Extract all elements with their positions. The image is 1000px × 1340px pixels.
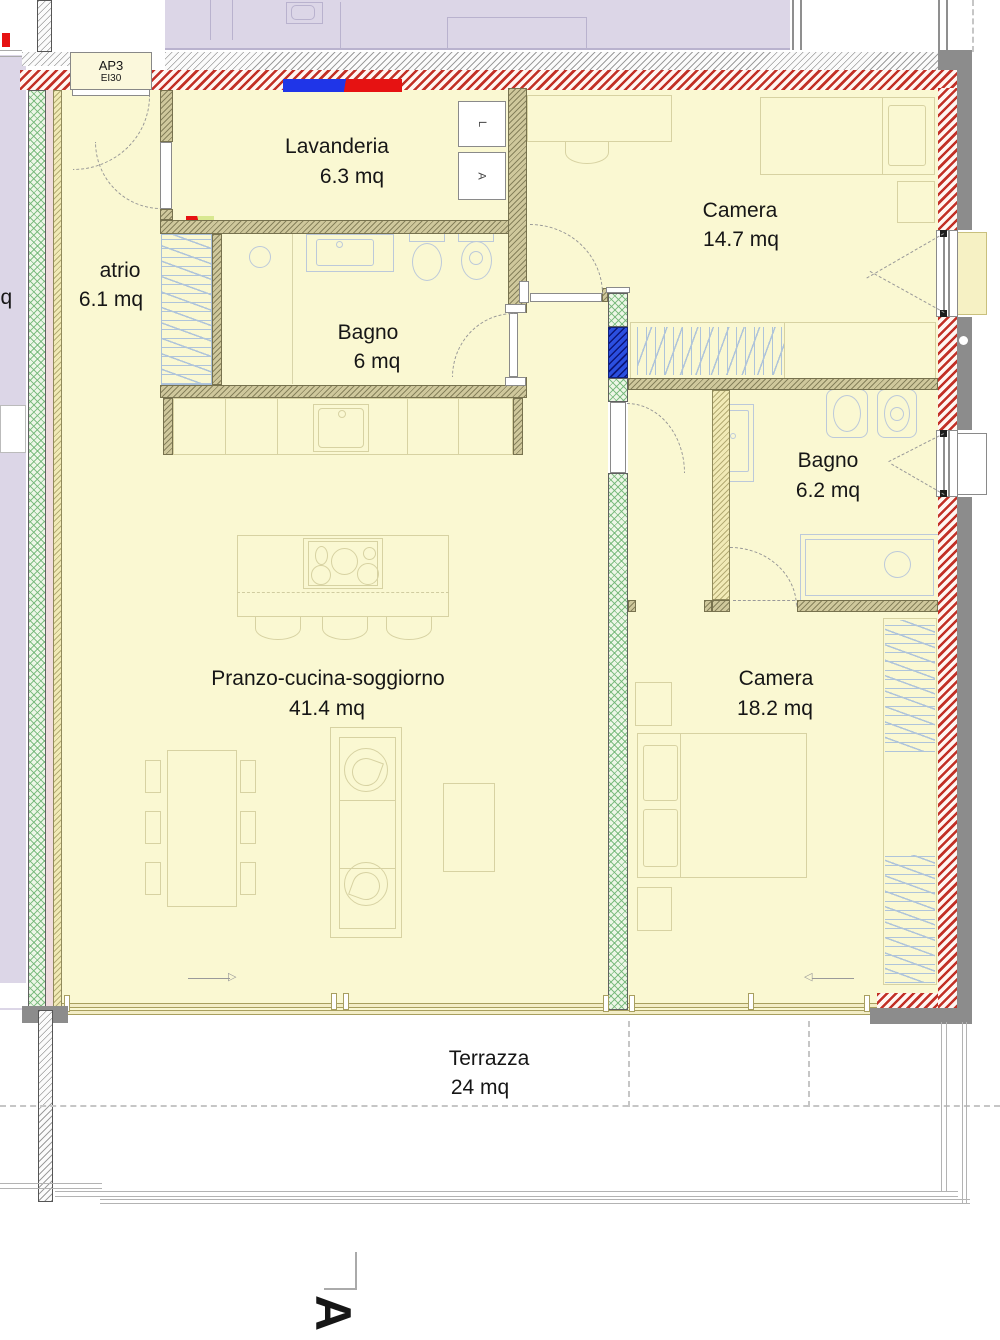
door-jamb xyxy=(704,600,712,612)
wall-green xyxy=(608,293,628,327)
slide-arrow-left-icon: ◁ xyxy=(804,972,812,983)
window-bath2 xyxy=(936,430,958,497)
chair xyxy=(240,862,256,895)
window-glass xyxy=(943,231,945,316)
dryer-letter: A xyxy=(476,172,488,179)
pillow xyxy=(888,105,926,166)
stool xyxy=(255,617,301,640)
bed-line xyxy=(680,734,681,877)
chair xyxy=(145,760,161,793)
sliding-glazing xyxy=(62,1010,935,1015)
shower-head xyxy=(249,246,271,268)
entrance-code: AP3 xyxy=(99,58,124,73)
room-label-terrazza: Terrazza xyxy=(449,1047,530,1071)
chair xyxy=(145,811,161,844)
door-leaf-hall xyxy=(610,402,626,473)
terrace-dashed-line xyxy=(0,1105,1000,1107)
room-area-living: 41.4 mq xyxy=(289,697,365,721)
neighbor-sink-basin xyxy=(291,5,315,20)
burner xyxy=(357,563,379,585)
chair xyxy=(145,862,161,895)
shower2-drain xyxy=(884,551,911,578)
wall-insulation-left xyxy=(28,90,46,1010)
wall-layer-inner xyxy=(53,90,62,1010)
room-area-bagno2: 6.2 mq xyxy=(796,479,860,503)
wall xyxy=(160,220,527,234)
neighbor-gap xyxy=(0,983,26,1008)
burner xyxy=(311,565,331,585)
counter-div xyxy=(407,398,408,455)
outer-band xyxy=(957,55,972,230)
wall-cap xyxy=(163,398,173,455)
outer-band xyxy=(957,317,972,430)
frame-tick xyxy=(629,995,635,1012)
slide-arrow-right-icon: ▷ xyxy=(228,972,236,983)
counter-div xyxy=(277,398,278,455)
vent-symbol xyxy=(283,79,402,92)
door-jamb xyxy=(505,377,526,386)
corner-gray xyxy=(870,1008,972,1024)
section-line xyxy=(324,1288,357,1290)
window-glass xyxy=(948,231,950,316)
dining-table xyxy=(167,750,237,907)
pillow xyxy=(643,809,678,867)
wall xyxy=(508,88,527,313)
window-glass xyxy=(943,431,945,496)
wardrobe-div xyxy=(784,322,785,379)
desk xyxy=(527,95,672,142)
wall-fire-left xyxy=(20,70,72,90)
bidet2-drain xyxy=(890,407,904,421)
bed-line xyxy=(882,98,883,174)
room-label-bagno1: Bagno xyxy=(338,321,399,345)
door-jamb xyxy=(628,600,636,612)
wall-bath2-left xyxy=(712,390,730,600)
room-area-atrio: 6.1 mq xyxy=(79,288,143,312)
door-leaf-bath2 xyxy=(733,600,795,601)
wall-exterior-right xyxy=(938,497,957,1008)
counter-div xyxy=(458,398,459,455)
pier-top xyxy=(37,0,52,52)
shower2-tray xyxy=(805,539,934,596)
railing xyxy=(941,1022,947,1192)
wall xyxy=(160,90,173,142)
nightstand xyxy=(635,682,672,726)
door-leaf-laundry xyxy=(160,142,172,209)
wall-line xyxy=(792,0,794,50)
room-area-bagno1: 6 mq xyxy=(354,350,401,374)
stool xyxy=(322,617,368,640)
railing xyxy=(962,1022,967,1204)
railing xyxy=(0,1183,102,1189)
desk-chair xyxy=(565,141,609,164)
slide-arrow-line xyxy=(812,978,854,979)
wall-green xyxy=(608,473,628,1010)
burner xyxy=(315,546,328,565)
room-area-camera1: 14.7 mq xyxy=(703,228,779,252)
vanity-basin xyxy=(316,239,374,266)
room-area-terrazza: 24 mq xyxy=(451,1076,509,1100)
wall xyxy=(160,209,173,220)
wall-line xyxy=(800,0,802,50)
wall xyxy=(212,234,222,385)
room-area-camera2: 18.2 mq xyxy=(737,697,813,721)
line xyxy=(0,50,22,51)
burner xyxy=(331,548,358,575)
sofa-div xyxy=(339,800,396,801)
door-jamb xyxy=(505,304,526,313)
wall-line xyxy=(946,0,948,50)
neighbor-apartment-left xyxy=(0,55,26,1010)
section-line xyxy=(355,1252,357,1289)
outer-band xyxy=(957,497,972,1010)
neighbor-window-gap xyxy=(0,405,26,453)
nightstand xyxy=(897,181,935,223)
kitchen-faucet xyxy=(338,410,346,418)
window-sill-white xyxy=(957,433,987,495)
entrance-fire-rating: EI30 xyxy=(101,73,122,84)
terrace-dashed-line xyxy=(808,1021,810,1107)
coffee-table xyxy=(443,783,495,872)
toilet2-bowl xyxy=(833,395,861,432)
counter-div xyxy=(225,398,226,455)
railing xyxy=(55,1191,958,1197)
room-area-lavanderia: 6.3 mq xyxy=(320,165,384,189)
atrio-closet xyxy=(161,234,212,385)
wall-exterior-right xyxy=(938,317,957,430)
toilet-tank xyxy=(409,233,445,242)
frame-tick xyxy=(343,993,349,1010)
washer-letter: L xyxy=(476,121,488,127)
door-leaf-bedroom1 xyxy=(530,293,602,302)
sink2-faucet xyxy=(730,433,736,439)
wall-green xyxy=(608,378,628,402)
wall xyxy=(712,600,730,612)
room-label-camera2: Camera xyxy=(739,667,814,691)
room-label-lavanderia: Lavanderia xyxy=(285,135,389,159)
neighbor-area-fragment: mq xyxy=(0,286,12,310)
bidet-drain xyxy=(469,251,483,265)
floor-plan: L A ▷ xyxy=(0,0,1000,1340)
slide-arrow-line xyxy=(188,978,230,979)
railing xyxy=(100,1199,970,1204)
wardrobe2-clothes xyxy=(885,620,935,752)
entrance-tag: AP3 EI30 xyxy=(70,52,152,90)
dryer-box: A xyxy=(458,152,506,200)
toilet-bowl xyxy=(412,243,442,281)
drain-dot xyxy=(959,336,968,345)
washer-box: L xyxy=(458,101,506,147)
wall-cap xyxy=(513,398,523,455)
section-marker-label: A xyxy=(304,1295,362,1331)
pillow xyxy=(643,745,678,801)
frame-tick xyxy=(748,993,754,1010)
sliding-glazing xyxy=(62,1003,935,1008)
room-label-bagno2: Bagno xyxy=(798,449,859,473)
partition-line xyxy=(292,234,293,384)
boundary-dashed xyxy=(972,0,974,52)
wall-layer-pink xyxy=(46,90,53,1010)
wardrobe2-clothes xyxy=(885,855,935,983)
room-label-camera1: Camera xyxy=(703,199,778,223)
stool xyxy=(386,617,432,640)
neighbor-wall-line xyxy=(340,2,341,48)
wall-gray-hatch xyxy=(22,52,72,66)
faucet-dot xyxy=(336,241,343,248)
nightstand xyxy=(637,887,672,931)
window-bedroom1 xyxy=(936,230,958,317)
wall-gray-hatch-top xyxy=(165,52,940,70)
wall-exterior-right xyxy=(938,88,957,230)
wall xyxy=(797,600,938,612)
line xyxy=(0,56,22,57)
frame-tick xyxy=(331,993,337,1010)
window-sill xyxy=(957,232,987,315)
wall xyxy=(160,385,527,398)
neighbor-wall-line xyxy=(210,0,211,40)
door-jamb xyxy=(519,281,529,303)
marker-red xyxy=(2,33,10,47)
column-structural xyxy=(608,327,628,378)
wardrobe-clothes xyxy=(637,327,784,375)
chair xyxy=(240,811,256,844)
terrace-dashed-line xyxy=(628,1021,630,1107)
room-label-living: Pranzo-cucina-soggiorno xyxy=(211,667,444,691)
chair xyxy=(240,760,256,793)
wall xyxy=(628,378,938,390)
wall-line xyxy=(938,0,940,50)
neighbor-wall-line xyxy=(232,0,233,40)
frame-tick xyxy=(603,995,609,1012)
room-label-atrio: atrio xyxy=(100,259,141,283)
window-glass xyxy=(948,431,950,496)
burner xyxy=(363,547,376,560)
wall-fire-top xyxy=(152,70,957,90)
sink2-basin xyxy=(727,410,749,472)
island-dash xyxy=(237,592,449,593)
neighbor-furniture xyxy=(447,17,587,50)
